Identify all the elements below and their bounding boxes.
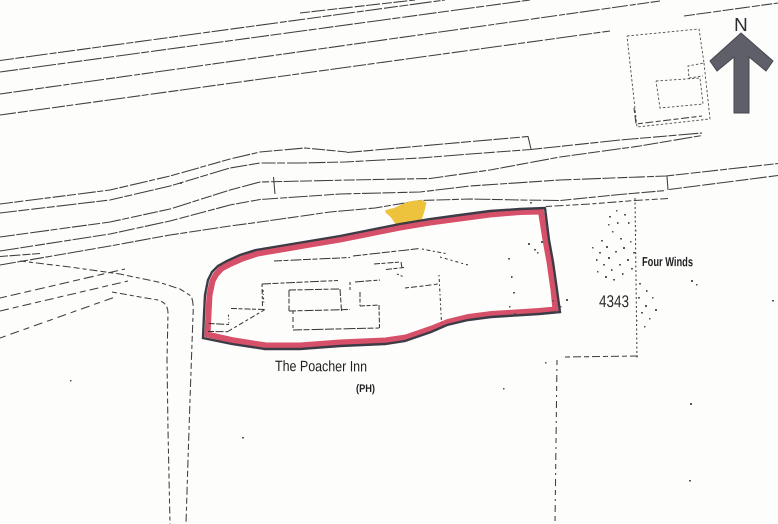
svg-text:The Poacher Inn: The Poacher Inn bbox=[275, 358, 367, 375]
svg-text:(PH): (PH) bbox=[356, 383, 375, 395]
svg-text:N: N bbox=[734, 15, 748, 36]
svg-text:Four Winds: Four Winds bbox=[642, 254, 693, 269]
svg-text:4343: 4343 bbox=[599, 292, 629, 311]
